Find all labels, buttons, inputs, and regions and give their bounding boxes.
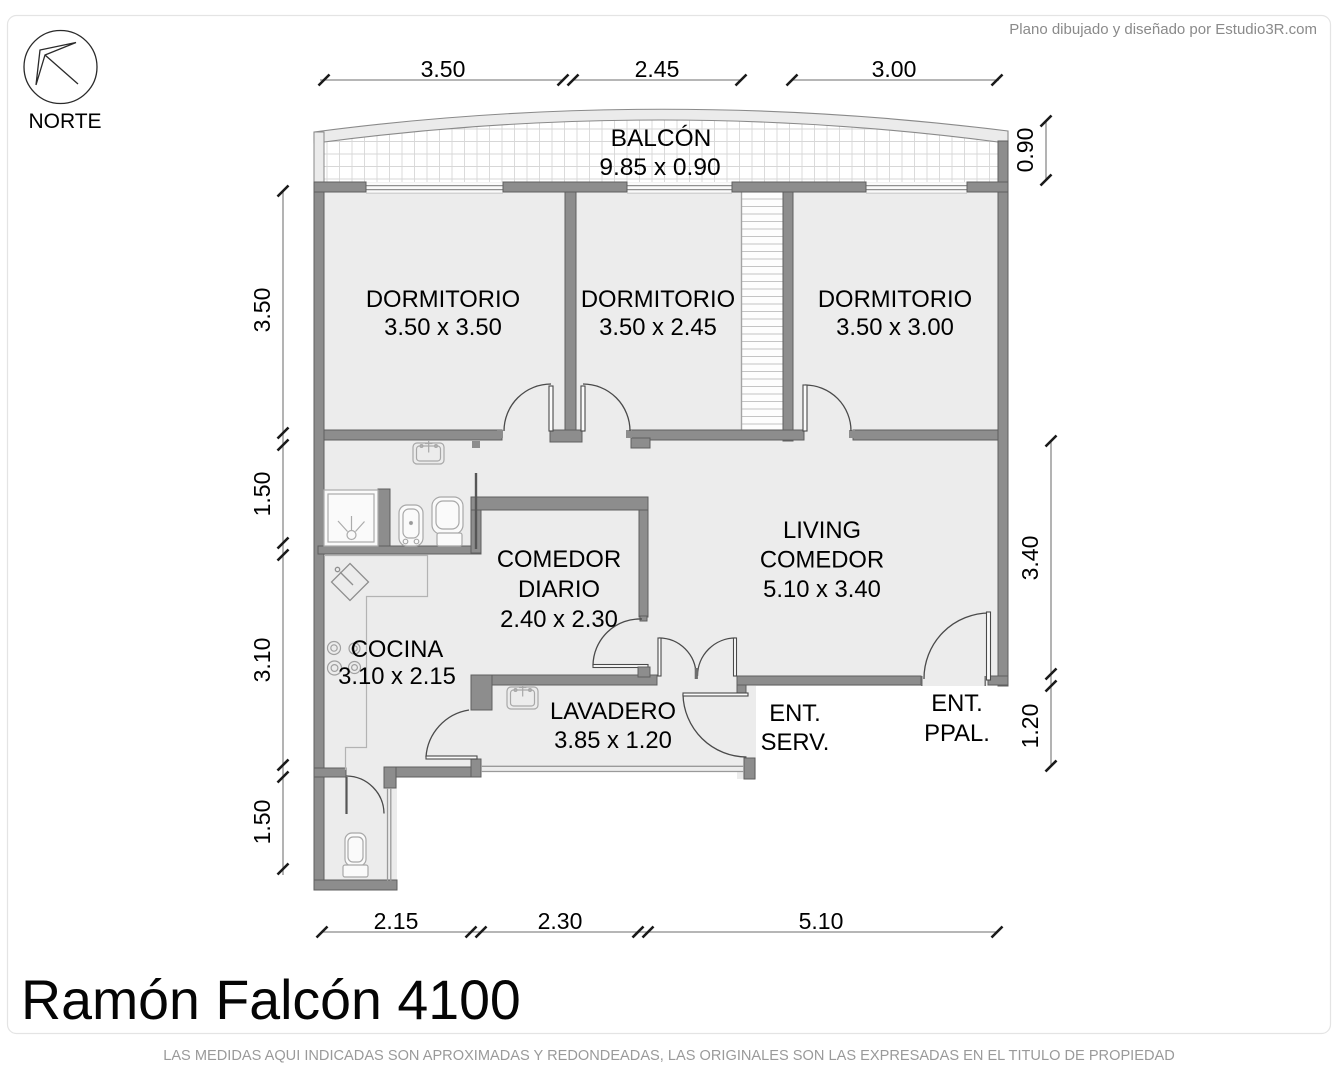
svg-text:ENT.: ENT. <box>769 700 821 727</box>
svg-text:DIARIO: DIARIO <box>518 576 600 603</box>
svg-text:0.90: 0.90 <box>1012 128 1038 173</box>
svg-text:3.50: 3.50 <box>249 288 275 333</box>
svg-text:3.50 x 2.45: 3.50 x 2.45 <box>599 314 717 341</box>
svg-text:NORTE: NORTE <box>28 110 101 133</box>
svg-text:SERV.: SERV. <box>761 729 830 756</box>
svg-text:3.50 x 3.50: 3.50 x 3.50 <box>384 314 502 341</box>
svg-text:3.00: 3.00 <box>872 56 917 82</box>
svg-text:3.40: 3.40 <box>1017 536 1043 581</box>
svg-text:Ramón Falcón 4100: Ramón Falcón 4100 <box>21 969 521 1031</box>
svg-text:1.50: 1.50 <box>249 800 275 845</box>
svg-text:2.45: 2.45 <box>635 56 680 82</box>
svg-text:COMEDOR: COMEDOR <box>760 547 884 574</box>
svg-text:2.15: 2.15 <box>374 908 419 934</box>
svg-text:COCINA: COCINA <box>351 636 444 663</box>
svg-text:ENT.: ENT. <box>931 690 983 717</box>
svg-text:LAS MEDIDAS AQUI INDICADAS SON: LAS MEDIDAS AQUI INDICADAS SON APROXIMAD… <box>163 1048 1175 1064</box>
svg-text:3.50: 3.50 <box>421 56 466 82</box>
svg-text:PPAL.: PPAL. <box>924 720 990 747</box>
svg-text:LIVING: LIVING <box>783 517 861 544</box>
svg-text:5.10 x 3.40: 5.10 x 3.40 <box>763 576 881 603</box>
svg-text:5.10: 5.10 <box>799 908 844 934</box>
svg-text:DORMITORIO: DORMITORIO <box>818 286 972 313</box>
svg-text:DORMITORIO: DORMITORIO <box>366 286 520 313</box>
svg-text:LAVADERO: LAVADERO <box>550 698 676 725</box>
svg-text:2.40 x 2.30: 2.40 x 2.30 <box>500 606 618 633</box>
svg-text:3.10 x 2.15: 3.10 x 2.15 <box>338 663 456 690</box>
svg-text:DORMITORIO: DORMITORIO <box>581 286 735 313</box>
svg-text:1.20: 1.20 <box>1017 704 1043 749</box>
svg-text:COMEDOR: COMEDOR <box>497 546 621 573</box>
svg-text:3.50 x 3.00: 3.50 x 3.00 <box>836 314 954 341</box>
svg-text:9.85 x 0.90: 9.85 x 0.90 <box>599 154 720 181</box>
svg-text:Plano dibujado y diseñado por: Plano dibujado y diseñado por Estudio3R.… <box>1009 21 1317 38</box>
svg-text:1.50: 1.50 <box>249 472 275 517</box>
svg-text:2.30: 2.30 <box>538 908 583 934</box>
svg-text:3.10: 3.10 <box>249 638 275 683</box>
svg-text:3.85 x 1.20: 3.85 x 1.20 <box>554 727 672 754</box>
svg-text:BALCÓN: BALCÓN <box>611 125 712 152</box>
